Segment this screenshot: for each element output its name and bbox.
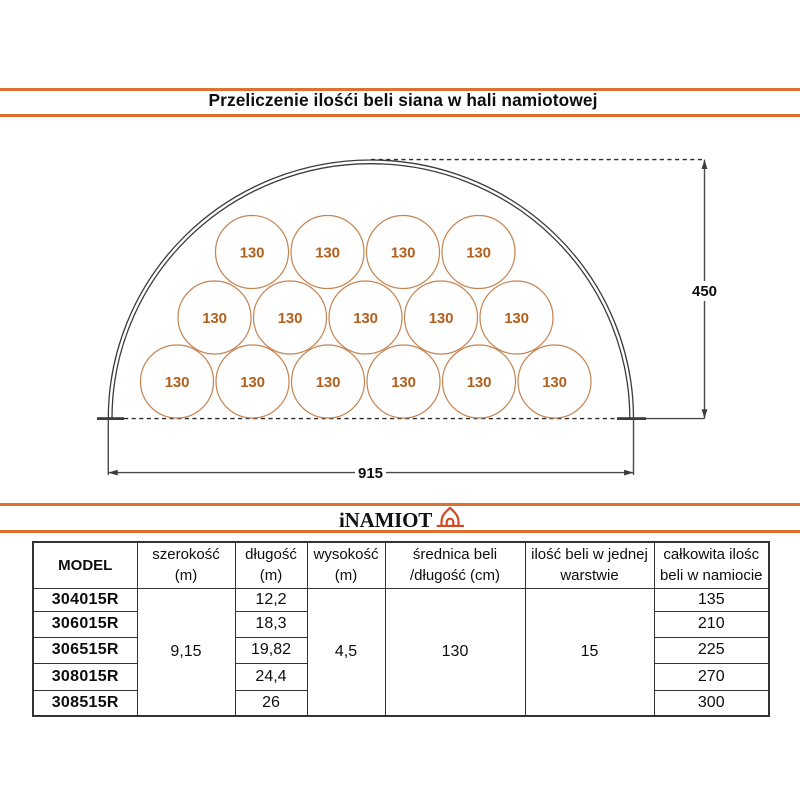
svg-text:130: 130 <box>240 245 264 262</box>
svg-text:130: 130 <box>391 245 415 262</box>
svg-text:130: 130 <box>353 310 377 327</box>
svg-text:130: 130 <box>504 310 528 327</box>
svg-text:130: 130 <box>316 374 340 391</box>
svg-text:130: 130 <box>391 374 415 391</box>
svg-text:450: 450 <box>692 283 717 300</box>
svg-text:130: 130 <box>429 310 453 327</box>
svg-text:130: 130 <box>542 374 566 391</box>
svg-text:130: 130 <box>315 245 339 262</box>
svg-text:130: 130 <box>278 310 302 327</box>
svg-text:130: 130 <box>202 310 226 327</box>
svg-text:130: 130 <box>466 245 490 262</box>
svg-text:130: 130 <box>240 374 264 391</box>
svg-text:130: 130 <box>467 374 491 391</box>
svg-text:915: 915 <box>358 465 383 482</box>
svg-text:130: 130 <box>165 374 189 391</box>
